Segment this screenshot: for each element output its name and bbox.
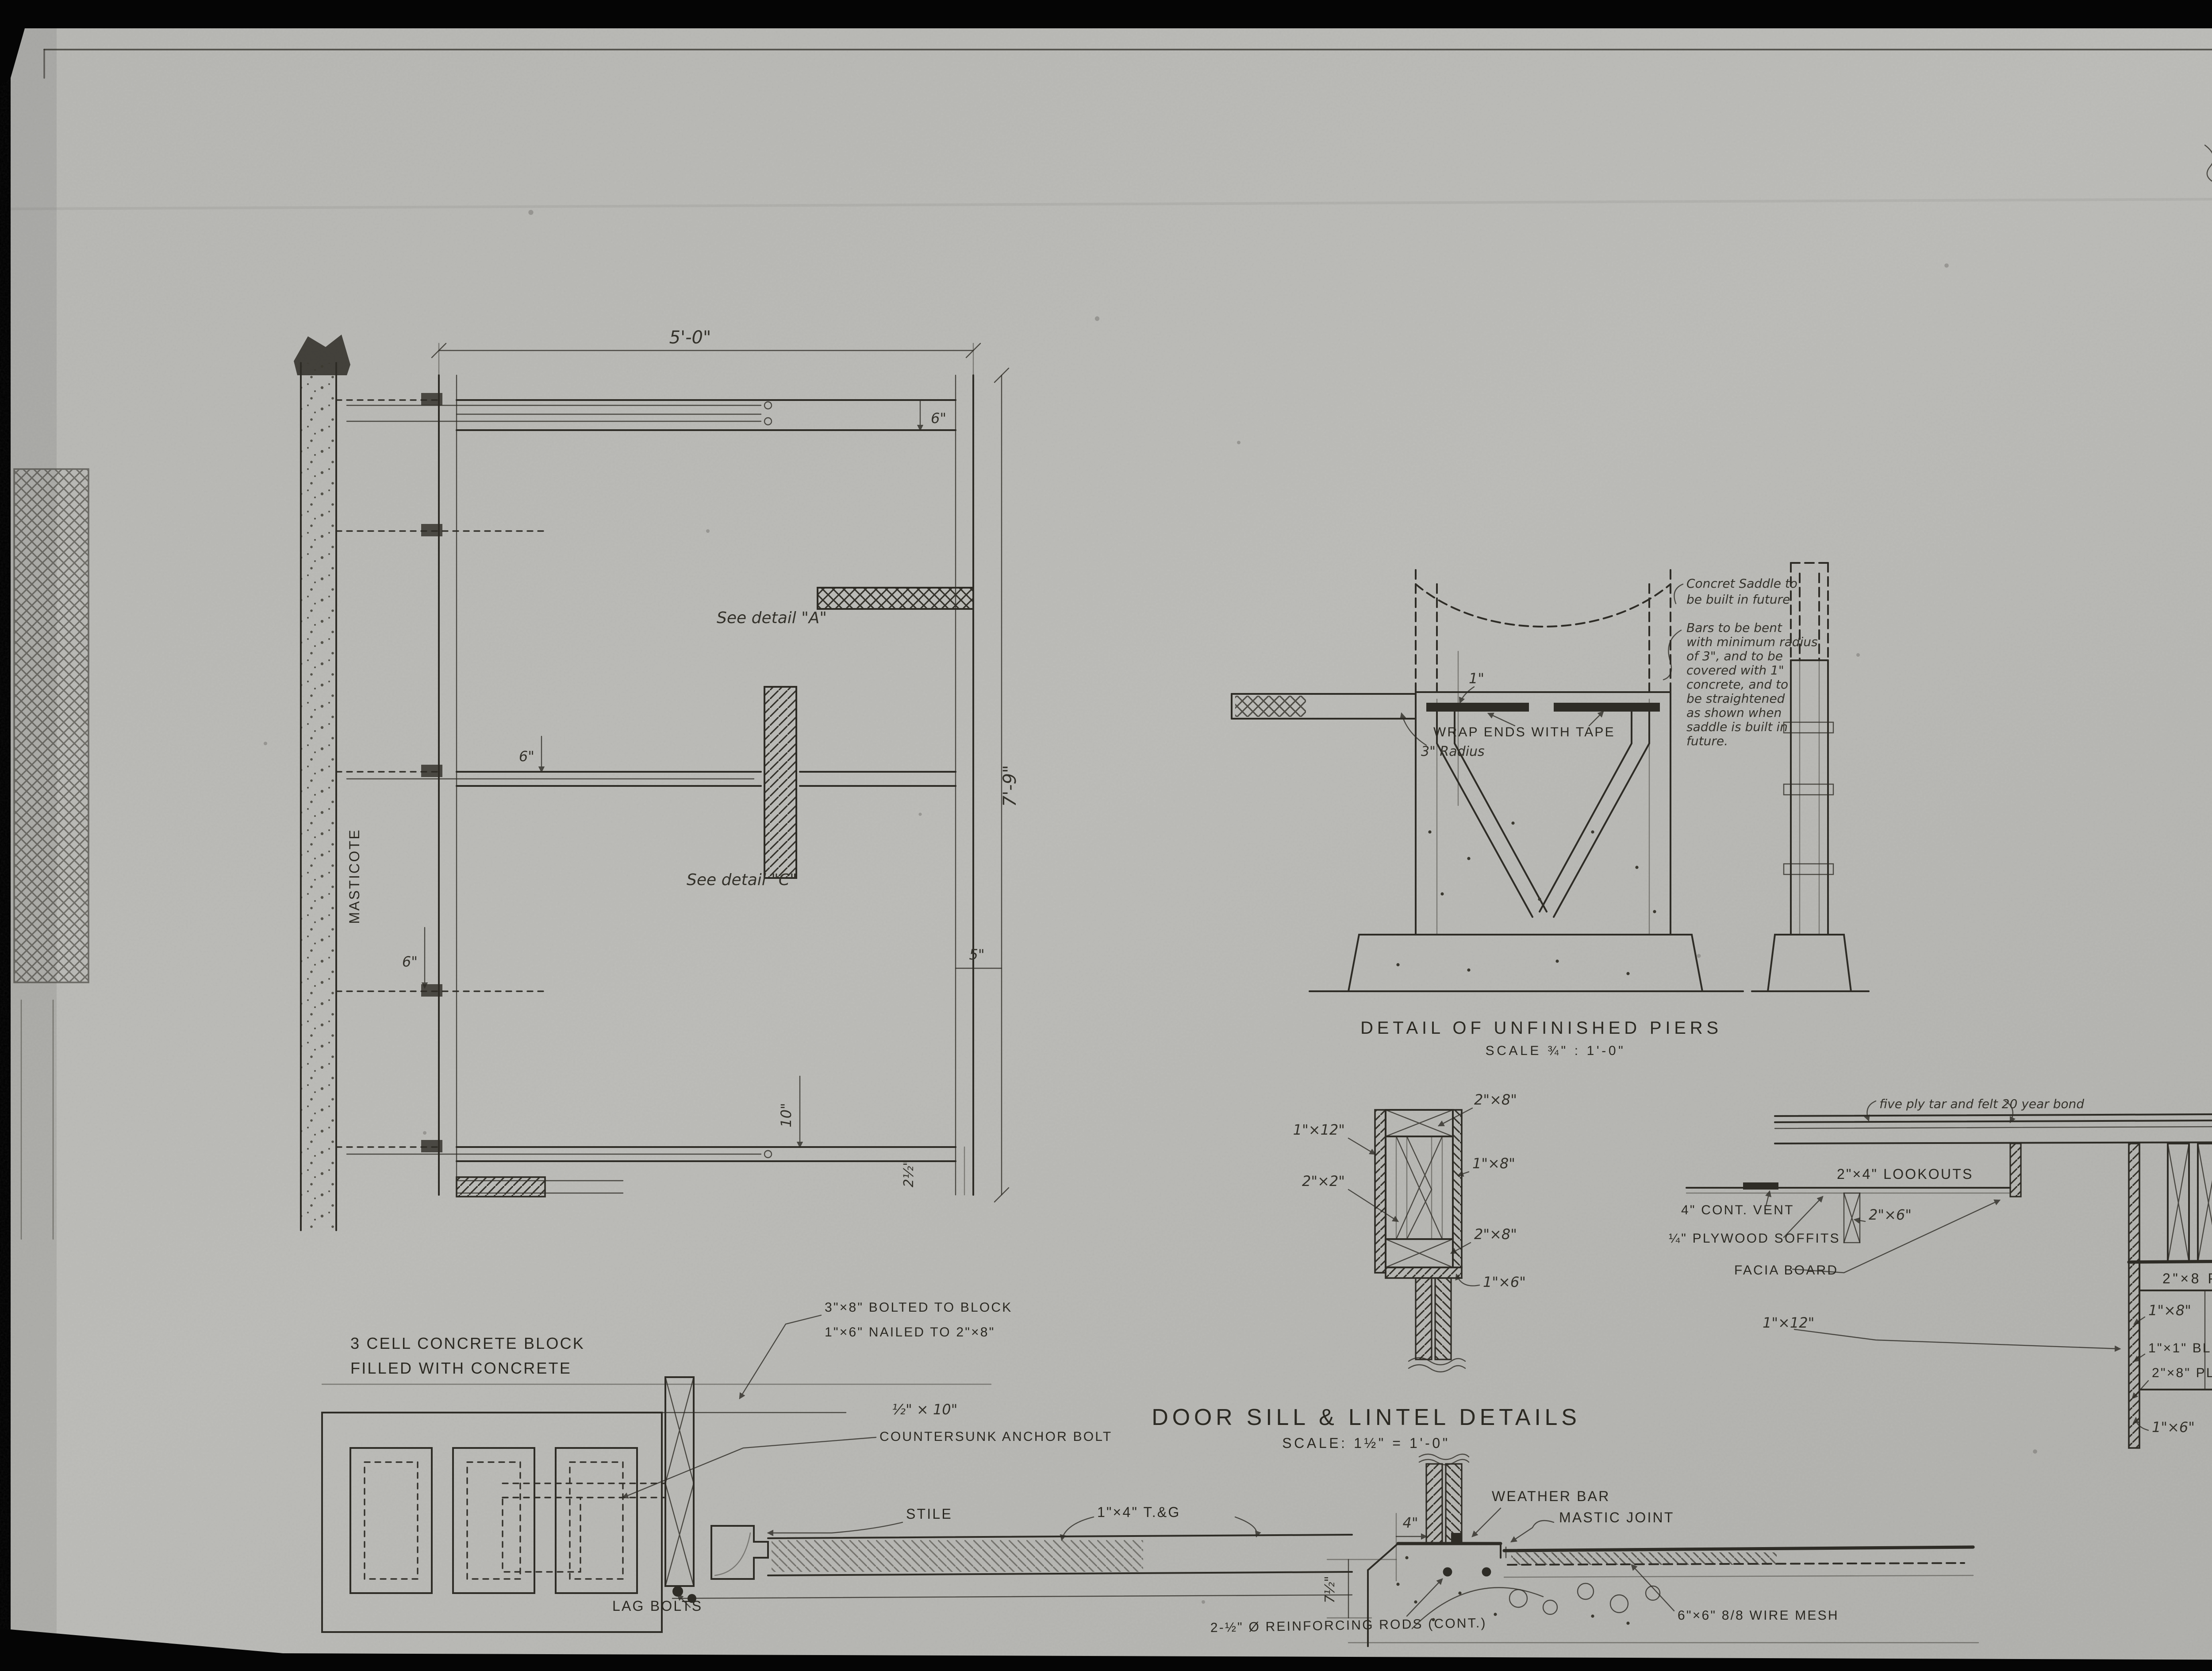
masticote-label: MASTICOTE (346, 828, 362, 924)
felt-note-label: five ply tar and felt 20 year bond (1879, 1097, 2084, 1111)
taped-bar-right (1554, 703, 1660, 712)
mastic-joint-label: MASTIC JOINT (1559, 1509, 1674, 1525)
lintel-2x8-top-label: 2"×8" (1474, 1091, 1517, 1108)
plan-dim-2half: 2½" (901, 1160, 917, 1187)
tongue-groove-label: 1"×4" T.&G (1097, 1504, 1180, 1520)
door-sill-lintel-scale: SCALE: 1½" = 1'-0" (1282, 1435, 1450, 1451)
svg-text:saddle is built in: saddle is built in (1686, 720, 1788, 734)
plate-top-label: 2"×8 PLATE (2162, 1271, 2212, 1286)
lintel-1x12-label: 1"×12" (1293, 1121, 1345, 1138)
block-caption-line1: 3 CELL CONCRETE BLOCK (350, 1334, 585, 1352)
facia-board-label: FACIA BOARD (1734, 1263, 1838, 1278)
svg-text:future.: future. (1686, 734, 1728, 748)
plan-dim-10: 10" (778, 1103, 795, 1127)
soffits-label: ¼" PLYWOOD SOFFITS (1669, 1231, 1840, 1246)
2x6-label: 2"×6" (1869, 1206, 1912, 1223)
svg-text:be built in future: be built in future (1686, 592, 1790, 607)
lintel-1x6-label: 1"×6" (1483, 1274, 1526, 1290)
bolted-label-line1: 3"×8" BOLTED TO BLOCK (825, 1300, 1012, 1315)
detail-a-bar (818, 588, 973, 609)
blueprint-sheet: 5'-0" 7'-9" 6" 6" 6" 5" 10" 2½" See deta… (0, 0, 2212, 1671)
facia-member (2010, 1144, 2021, 1197)
see-detail-a-label: See detail "A" (717, 609, 827, 627)
blocking-label: 1"×1" BLOCKING (2148, 1341, 2212, 1355)
anchor-label-line1: ½" × 10" (892, 1401, 957, 1418)
plate-bottom-label: 2"×8" PLATE (2152, 1366, 2212, 1380)
weather-bar-label: WEATHER BAR (1492, 1488, 1610, 1504)
svg-text:of 3", and to be: of 3", and to be (1686, 649, 1783, 663)
plan-dim-6-mid: 6" (519, 748, 534, 765)
tg-flooring (772, 1540, 1143, 1572)
lintel-2x2-label: 2"×2" (1302, 1173, 1345, 1190)
plan-width-dim: 5'-0" (669, 327, 711, 348)
stile-label: STILE (906, 1506, 952, 1522)
plan-dim-6-low: 6" (402, 953, 418, 970)
vent-slot (1743, 1182, 1778, 1190)
blueprint-canvas: 5'-0" 7'-9" 6" 6" 6" 5" 10" 2½" See deta… (0, 0, 2212, 1671)
1x6-label: 1"×6" (2152, 1419, 2195, 1436)
siding-1x12 (2129, 1144, 2139, 1448)
svg-text:Concret Saddle to: Concret Saddle to (1686, 576, 1797, 591)
paper-background (11, 28, 2212, 1671)
door-sill-lintel-title: DOOR SILL & LINTEL DETAILS (1152, 1405, 1581, 1430)
reinforcing-rod-left (1443, 1567, 1452, 1577)
pier-detail-scale: SCALE ¾" : 1'-0" (1486, 1043, 1626, 1058)
sill-dim-4: 4" (1402, 1514, 1418, 1531)
pier-dim-1: 1" (1469, 670, 1484, 687)
anchor-label-line2: COUNTERSUNK ANCHOR BOLT (879, 1429, 1112, 1444)
wire-mesh-label: 6"×6" 8/8 WIRE MESH (1678, 1608, 1839, 1623)
svg-text:as shown when: as shown when (1686, 705, 1782, 720)
plan-dim-5: 5" (969, 946, 984, 963)
plan-dim-6-top: 6" (931, 410, 946, 427)
detail-c-block (764, 687, 796, 878)
plan-height-dim: 7'-9" (1000, 765, 1020, 807)
svg-text:concrete, and to: concrete, and to (1686, 677, 1788, 692)
lintel-1x8-label: 1"×8" (1472, 1155, 1515, 1172)
block-caption-line2: FILLED WITH CONCRETE (350, 1359, 572, 1377)
svg-text:with minimum radius: with minimum radius (1686, 635, 1818, 649)
radius-label: 3" Radius (1421, 744, 1485, 759)
svg-text:be straightened: be straightened (1686, 691, 1785, 706)
lintel-2x8-bottom-label: 2"×8" (1474, 1226, 1517, 1243)
wrap-ends-label: WRAP ENDS WITH TAPE (1433, 725, 1615, 739)
sill-dim-7half: 7½" (1322, 1576, 1338, 1603)
pier-detail-title: DETAIL OF UNFINISHED PIERS (1360, 1018, 1722, 1038)
scanned-blueprint-page: 5'-0" 7'-9" 6" 6" 6" 5" 10" 2½" See deta… (0, 0, 2212, 1671)
1x12-label: 1"×12" (1763, 1314, 1814, 1331)
svg-text:covered with 1": covered with 1" (1686, 663, 1784, 678)
see-detail-c-label: See detail "C" (687, 871, 797, 889)
1x8-label: 1"×8" (2148, 1302, 2191, 1319)
svg-text:Bars to be bent: Bars to be bent (1686, 620, 1782, 635)
vent-label: 4" CONT. VENT (1681, 1203, 1794, 1217)
lookouts-label: 2"×4" LOOKOUTS (1837, 1166, 1974, 1182)
reinforcing-rod-right (1482, 1567, 1491, 1577)
taped-bar-left (1426, 703, 1529, 712)
bolted-label-line2: 1"×6" NAILED TO 2"×8" (825, 1325, 995, 1340)
